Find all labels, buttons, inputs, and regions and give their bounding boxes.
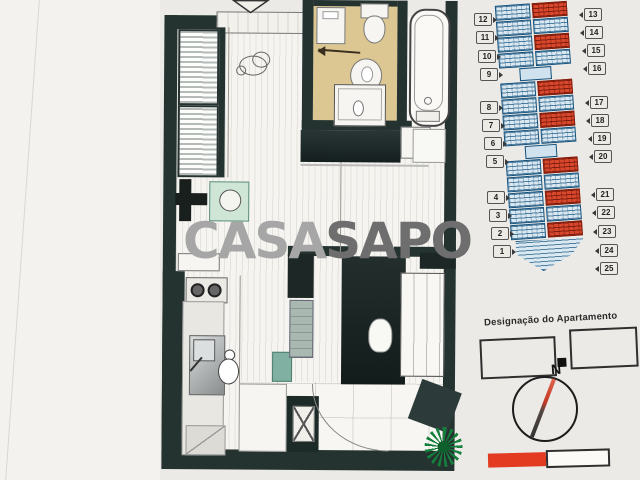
badge-arrow-right-icon [499,105,506,111]
unit-badge-11: 11 [476,31,502,44]
scale-bar-filled [488,452,546,468]
site-unit-18 [538,95,574,112]
site-plan-stair-core [519,66,552,81]
site-unit-21 [543,156,579,173]
site-plan-angled-end [511,236,585,273]
unit-badge-label: 17 [590,96,608,109]
unit-badge-label: 25 [600,262,618,275]
unit-badge-9: 9 [480,68,506,81]
site-unit-24 [546,204,582,221]
scanned-floorplan-page: CASASAPO 1211109876543211314151617181920… [0,0,640,480]
badge-arrow-left-icon [592,248,599,254]
designacao-box-block [479,336,557,379]
badge-arrow-right-icon [497,54,504,60]
site-unit-15 [534,33,570,50]
unit-badge-19: 19 [585,132,611,145]
unit-badge-15: 15 [579,44,605,57]
badge-arrow-left-icon [588,192,595,198]
unit-badge-label: 18 [591,114,609,127]
site-unit-20 [540,127,576,144]
unit-badge-label: 12 [474,13,492,26]
unit-badge-21: 21 [588,188,614,201]
watermark-sapo: SAPO [325,212,471,270]
unit-badge-14: 14 [577,26,603,39]
unit-badge-25: 25 [592,262,618,275]
site-unit-7 [501,97,537,114]
unit-badge-24: 24 [592,244,618,257]
watermark-casa: CASA [183,212,325,270]
site-unit-14 [533,17,569,34]
badge-arrow-right-icon [505,159,512,165]
unit-badge-10: 10 [478,50,504,63]
unit-badge-label: 7 [482,119,500,132]
site-unit-2 [508,191,544,208]
badge-arrow-left-icon [589,210,596,216]
unit-badge-22: 22 [589,206,615,219]
badge-arrow-left-icon [585,136,592,142]
site-unit-25 [547,220,583,237]
casasapo-watermark: CASASAPO [183,212,471,270]
unit-badge-label: 23 [598,225,616,238]
unit-badge-label: 1 [493,245,511,258]
unit-badge-label: 9 [480,68,498,81]
badge-arrow-left-icon [580,66,587,72]
badge-arrow-left-icon [586,154,593,160]
scale-bar-empty [546,448,610,468]
unit-badge-label: 3 [489,209,507,222]
badge-arrow-left-icon [582,100,589,106]
site-unit-19 [539,111,575,128]
unit-badge-13: 13 [576,8,602,21]
unit-badge-8: 8 [480,101,506,114]
badge-arrow-right-icon [508,213,515,219]
unit-badge-18: 18 [583,114,609,127]
site-unit-8 [500,81,536,98]
site-unit-23 [545,188,581,205]
site-unit-22 [544,172,580,189]
unit-badge-4: 4 [487,191,513,204]
badge-arrow-right-icon [506,195,513,201]
unit-badge-23: 23 [590,225,616,238]
unit-badge-5: 5 [486,155,512,168]
scale-bar [488,447,612,469]
unit-badge-label: 4 [487,191,505,204]
unit-badge-label: 16 [588,62,606,75]
designacao-box-unit [569,327,639,370]
site-unit-13 [532,1,568,18]
compass-icon [512,376,578,442]
unit-badge-6: 6 [484,137,510,150]
badge-arrow-right-icon [501,123,508,129]
badge-arrow-right-icon [503,141,510,147]
unit-badge-label: 21 [596,188,614,201]
unit-badge-label: 11 [476,31,494,44]
unit-badge-1: 1 [493,245,519,258]
unit-badge-label: 13 [584,8,602,21]
unit-badge-label: 15 [587,44,605,57]
badge-arrow-left-icon [583,118,590,124]
site-unit-12 [495,3,531,20]
badge-arrow-right-icon [495,35,502,41]
badge-arrow-left-icon [579,48,586,54]
badge-arrow-right-icon [510,231,517,237]
site-unit-16 [535,49,571,66]
site-unit-17 [537,79,573,96]
badge-arrow-left-icon [576,12,583,18]
badge-arrow-left-icon [590,229,597,235]
unit-badge-label: 6 [484,137,502,150]
unit-badge-2: 2 [491,227,517,240]
unit-badge-17: 17 [582,96,608,109]
unit-badge-12: 12 [474,13,500,26]
badge-arrow-right-icon [493,17,500,23]
unit-badge-label: 20 [594,150,612,163]
unit-badge-20: 20 [586,150,612,163]
unit-badge-16: 16 [580,62,606,75]
unit-badge-label: 22 [597,206,615,219]
unit-badge-7: 7 [482,119,508,132]
unit-badge-3: 3 [489,209,515,222]
unit-badge-label: 10 [478,50,496,63]
badge-arrow-right-icon [499,72,506,78]
unit-badge-label: 14 [585,26,603,39]
badge-arrow-right-icon [512,249,519,255]
unit-badge-label: 8 [480,101,498,114]
site-plan-stair-core [525,144,558,159]
unit-badge-label: 24 [600,244,618,257]
unit-badge-label: 2 [491,227,509,240]
unit-badge-label: 19 [593,132,611,145]
north-label: N [550,361,561,378]
site-unit-3 [507,175,543,192]
unit-badge-label: 5 [486,155,504,168]
badge-arrow-left-icon [592,266,599,272]
badge-arrow-left-icon [577,30,584,36]
